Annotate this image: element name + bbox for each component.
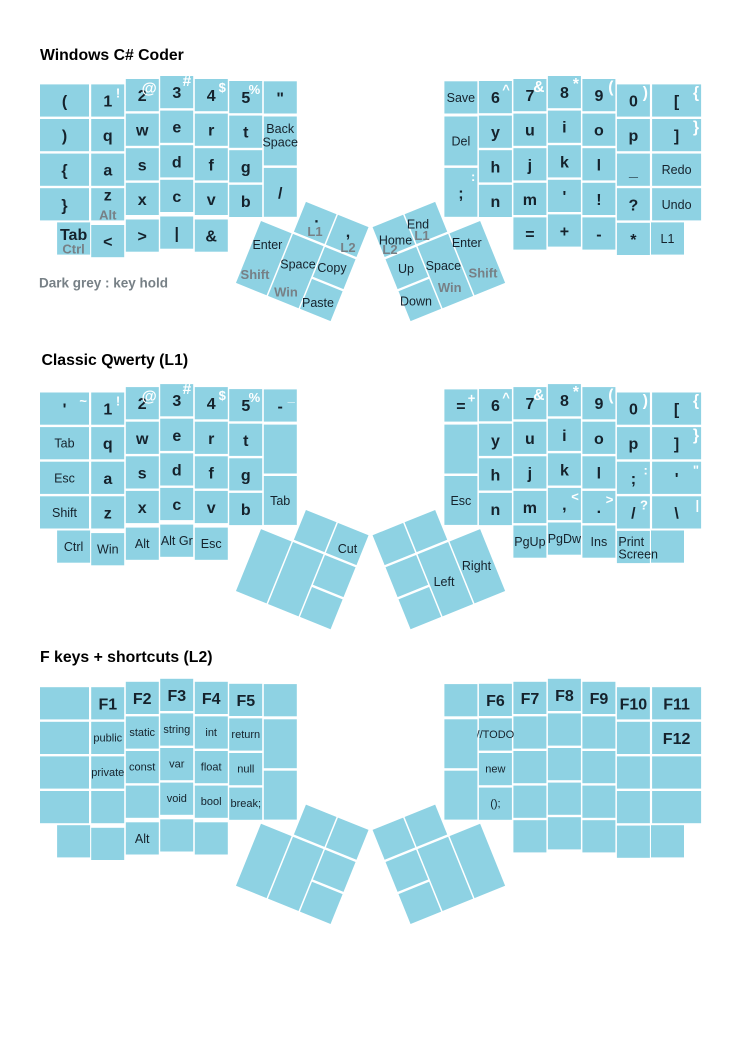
svg-text:;: ;: [458, 185, 463, 202]
svg-text:@: @: [142, 389, 157, 406]
svg-text:F9: F9: [590, 691, 609, 708]
svg-text:L2: L2: [382, 242, 397, 257]
svg-text:{: {: [693, 393, 699, 410]
svg-text:L1: L1: [414, 228, 429, 243]
svg-text:8: 8: [560, 85, 569, 102]
svg-text:j: j: [527, 465, 532, 482]
svg-text:const: const: [129, 762, 155, 774]
svg-text:F7: F7: [521, 691, 540, 708]
svg-text:_: _: [628, 163, 639, 180]
svg-text:new: new: [485, 764, 505, 776]
svg-text:F4: F4: [202, 691, 221, 708]
svg-text:+: +: [468, 390, 476, 405]
svg-text:void: void: [167, 793, 187, 805]
svg-text:=: =: [456, 399, 465, 416]
svg-text:Tab: Tab: [270, 494, 290, 508]
svg-text:t: t: [243, 433, 249, 450]
svg-text:Alt Gr: Alt Gr: [161, 534, 193, 548]
svg-text:F12: F12: [663, 731, 691, 748]
svg-text:PgUp: PgUp: [514, 535, 545, 549]
svg-text:int: int: [205, 727, 217, 739]
svg-text:?: ?: [640, 497, 648, 512]
svg-text:x: x: [138, 500, 147, 517]
svg-text:]: ]: [674, 436, 679, 453]
svg-text:Esc: Esc: [201, 537, 222, 551]
svg-text:Save: Save: [447, 91, 476, 105]
svg-text:Undo: Undo: [662, 198, 692, 212]
svg-text:Ins: Ins: [591, 535, 608, 549]
svg-text:!: !: [116, 85, 120, 100]
svg-text:9: 9: [594, 396, 603, 413]
svg-text:F8: F8: [555, 688, 574, 705]
svg-text:%: %: [249, 82, 261, 97]
svg-text:!: !: [596, 192, 601, 209]
svg-text:null: null: [237, 764, 254, 776]
svg-text::: :: [471, 169, 475, 184]
svg-text:f: f: [209, 465, 215, 482]
svg-text:r: r: [208, 431, 214, 448]
svg-text:bool: bool: [201, 796, 222, 808]
svg-text:|: |: [175, 226, 179, 243]
svg-text:Copy: Copy: [317, 261, 347, 275]
svg-text:": ": [693, 463, 699, 478]
svg-text:m: m: [523, 192, 537, 209]
svg-text:>: >: [138, 229, 147, 246]
svg-text:1: 1: [103, 402, 112, 419]
svg-text:a: a: [103, 471, 112, 488]
svg-text:j: j: [527, 157, 532, 174]
svg-text:': ': [562, 189, 566, 206]
svg-text:Esc: Esc: [54, 471, 75, 485]
svg-text:PgDw: PgDw: [548, 532, 582, 546]
svg-text:s: s: [138, 157, 147, 174]
svg-text:L1: L1: [307, 224, 322, 239]
svg-text:': ': [675, 471, 679, 488]
svg-text:var: var: [169, 759, 185, 771]
svg-text:1: 1: [103, 94, 112, 111]
svg-text:0: 0: [629, 402, 638, 419]
svg-text:b: b: [241, 194, 251, 211]
svg-text:): ): [643, 393, 648, 410]
svg-text:Paste: Paste: [302, 296, 334, 310]
svg-text:?: ?: [629, 197, 639, 214]
svg-text:F11: F11: [663, 696, 690, 713]
svg-text:z: z: [104, 505, 112, 522]
svg-text:&: &: [533, 79, 544, 96]
svg-text:Win: Win: [438, 280, 462, 295]
svg-text:<: <: [103, 234, 112, 251]
svg-text:Up: Up: [398, 262, 414, 276]
svg-text:c: c: [172, 189, 181, 206]
svg-text:c: c: [172, 497, 181, 514]
svg-text:L2: L2: [340, 240, 355, 255]
svg-text:F6: F6: [486, 693, 505, 710]
svg-text:m: m: [523, 500, 537, 517]
svg-text:Enter: Enter: [252, 238, 282, 252]
svg-text:/: /: [631, 505, 636, 522]
svg-text:Shift: Shift: [241, 267, 271, 282]
svg-text:Space: Space: [426, 259, 461, 273]
svg-text:public: public: [93, 732, 122, 744]
svg-text:;: ;: [631, 471, 636, 488]
svg-text:$: $: [219, 80, 227, 95]
svg-text:Back: Back: [266, 122, 295, 136]
svg-text:4: 4: [207, 88, 216, 105]
svg-text:a: a: [103, 163, 112, 180]
svg-text:float: float: [201, 762, 222, 774]
svg-text:): ): [62, 128, 67, 145]
svg-text:i: i: [562, 120, 566, 137]
svg-text:return: return: [231, 729, 260, 741]
svg-text:,: ,: [346, 224, 350, 241]
svg-text:|: |: [695, 497, 699, 512]
svg-text:Space: Space: [280, 257, 315, 271]
svg-text:Ctrl: Ctrl: [64, 540, 83, 554]
svg-text:n: n: [491, 502, 501, 519]
svg-text:w: w: [135, 431, 149, 448]
svg-text:Win: Win: [97, 543, 119, 557]
svg-text:Alt: Alt: [99, 207, 117, 222]
svg-text:*: *: [573, 76, 580, 93]
svg-text:9: 9: [594, 88, 603, 105]
svg-text:_: _: [287, 389, 296, 404]
svg-text:h: h: [491, 467, 501, 484]
svg-text:Ctrl: Ctrl: [62, 242, 84, 257]
svg-text:}: }: [693, 119, 699, 136]
svg-text:[: [: [674, 402, 680, 419]
svg-text:Alt: Alt: [135, 832, 150, 846]
svg-text:~: ~: [79, 394, 87, 409]
svg-text:f: f: [209, 157, 215, 174]
svg-text:*: *: [573, 384, 580, 401]
svg-text:Dark grey : key hold: Dark grey : key hold: [39, 276, 168, 291]
svg-text:z: z: [104, 187, 112, 204]
svg-text:u: u: [525, 431, 535, 448]
svg-text:v: v: [207, 500, 216, 517]
svg-text:(: (: [608, 387, 614, 404]
svg-text:(: (: [62, 94, 68, 111]
svg-text:e: e: [172, 120, 181, 137]
svg-text:[: [: [674, 94, 680, 111]
svg-text:d: d: [172, 154, 182, 171]
svg-text:k: k: [560, 462, 569, 479]
svg-text:h: h: [491, 159, 501, 176]
svg-text:%: %: [249, 390, 261, 405]
svg-text:4: 4: [207, 396, 216, 413]
svg-text:F1: F1: [98, 696, 117, 713]
svg-text:Classic Qwerty (L1): Classic Qwerty (L1): [42, 352, 189, 369]
svg-text:F2: F2: [133, 691, 152, 708]
svg-text:Tab: Tab: [54, 437, 74, 451]
svg-text://TODO: //TODO: [477, 729, 515, 741]
svg-text:e: e: [172, 428, 181, 445]
svg-text:v: v: [207, 192, 216, 209]
svg-text:3: 3: [172, 85, 181, 102]
svg-text:private: private: [91, 767, 124, 779]
svg-text:static: static: [129, 727, 155, 739]
svg-text:n: n: [491, 194, 501, 211]
svg-text:F10: F10: [620, 696, 648, 713]
svg-text:]: ]: [674, 128, 679, 145]
svg-text:Screen: Screen: [618, 548, 658, 562]
svg-text:Cut: Cut: [338, 542, 358, 556]
svg-text:Shift: Shift: [52, 506, 78, 520]
svg-text:-: -: [596, 227, 601, 244]
svg-text:.: .: [597, 500, 601, 517]
svg-text:Space: Space: [262, 136, 297, 150]
svg-text:>: >: [606, 492, 614, 507]
svg-text:<: <: [571, 489, 579, 504]
svg-text:();: ();: [490, 798, 500, 810]
svg-text:6: 6: [491, 398, 500, 415]
svg-text:': ': [63, 402, 67, 419]
svg-text:w: w: [135, 123, 149, 140]
svg-text:F5: F5: [236, 693, 255, 710]
svg-text:8: 8: [560, 393, 569, 410]
svg-text:": ": [276, 90, 284, 107]
svg-text:o: o: [594, 431, 604, 448]
svg-text:b: b: [241, 502, 251, 519]
svg-text:^: ^: [502, 390, 510, 405]
svg-text:Redo: Redo: [662, 163, 692, 177]
svg-text:{: {: [693, 84, 699, 101]
svg-text:Down: Down: [400, 295, 432, 309]
svg-text:): ): [643, 84, 648, 101]
svg-text:Enter: Enter: [452, 236, 482, 250]
svg-text:Alt: Alt: [135, 537, 150, 551]
svg-text:k: k: [560, 154, 569, 171]
svg-text:Esc: Esc: [450, 494, 471, 508]
svg-text:t: t: [243, 125, 249, 142]
svg-text:&: &: [205, 229, 217, 246]
svg-text:g: g: [241, 159, 251, 176]
svg-text:q: q: [103, 436, 113, 453]
svg-text:break;: break;: [231, 798, 262, 810]
svg-text:o: o: [594, 123, 604, 140]
svg-text:#: #: [183, 73, 192, 90]
svg-text:Right: Right: [462, 559, 492, 573]
svg-text:q: q: [103, 128, 113, 145]
svg-text:}: }: [61, 197, 67, 214]
svg-text:0: 0: [629, 94, 638, 111]
svg-text:*: *: [630, 232, 637, 249]
svg-text:l: l: [597, 465, 601, 482]
svg-text:r: r: [208, 123, 214, 140]
svg-text:^: ^: [502, 82, 510, 97]
svg-text:6: 6: [491, 90, 500, 107]
svg-text:!: !: [116, 394, 120, 409]
svg-text:u: u: [525, 123, 535, 140]
svg-text::: :: [644, 463, 648, 478]
svg-text:s: s: [138, 465, 147, 482]
svg-text:L1: L1: [661, 232, 675, 246]
svg-text:#: #: [183, 381, 192, 398]
svg-text:{: {: [61, 163, 67, 180]
svg-text:=: =: [525, 227, 534, 244]
svg-text:\: \: [674, 505, 679, 522]
svg-text:&: &: [533, 387, 544, 404]
svg-text:Del: Del: [452, 134, 471, 148]
svg-text:y: y: [491, 125, 500, 142]
svg-text:$: $: [219, 388, 227, 403]
svg-text:F3: F3: [167, 688, 186, 705]
svg-text:Win: Win: [274, 285, 298, 300]
svg-text:}: }: [693, 427, 699, 444]
svg-text:Left: Left: [434, 575, 455, 589]
svg-text:3: 3: [172, 393, 181, 410]
svg-text:(: (: [608, 79, 614, 96]
svg-text:string: string: [163, 724, 190, 736]
svg-text:Shift: Shift: [469, 266, 499, 281]
svg-text:@: @: [142, 81, 157, 98]
svg-text:x: x: [138, 192, 147, 209]
svg-text:+: +: [560, 224, 569, 241]
svg-text:p: p: [629, 128, 639, 145]
svg-text:/: /: [278, 185, 283, 202]
svg-text:-: -: [278, 399, 283, 416]
svg-text:y: y: [491, 433, 500, 450]
svg-text:g: g: [241, 467, 251, 484]
svg-text:p: p: [629, 436, 639, 453]
svg-text:Windows C# Coder: Windows C# Coder: [40, 47, 184, 64]
svg-text:,: ,: [562, 497, 566, 514]
svg-text:d: d: [172, 462, 182, 479]
svg-text:i: i: [562, 428, 566, 445]
svg-text:F keys + shortcuts (L2): F keys + shortcuts (L2): [40, 649, 213, 666]
svg-text:l: l: [597, 157, 601, 174]
